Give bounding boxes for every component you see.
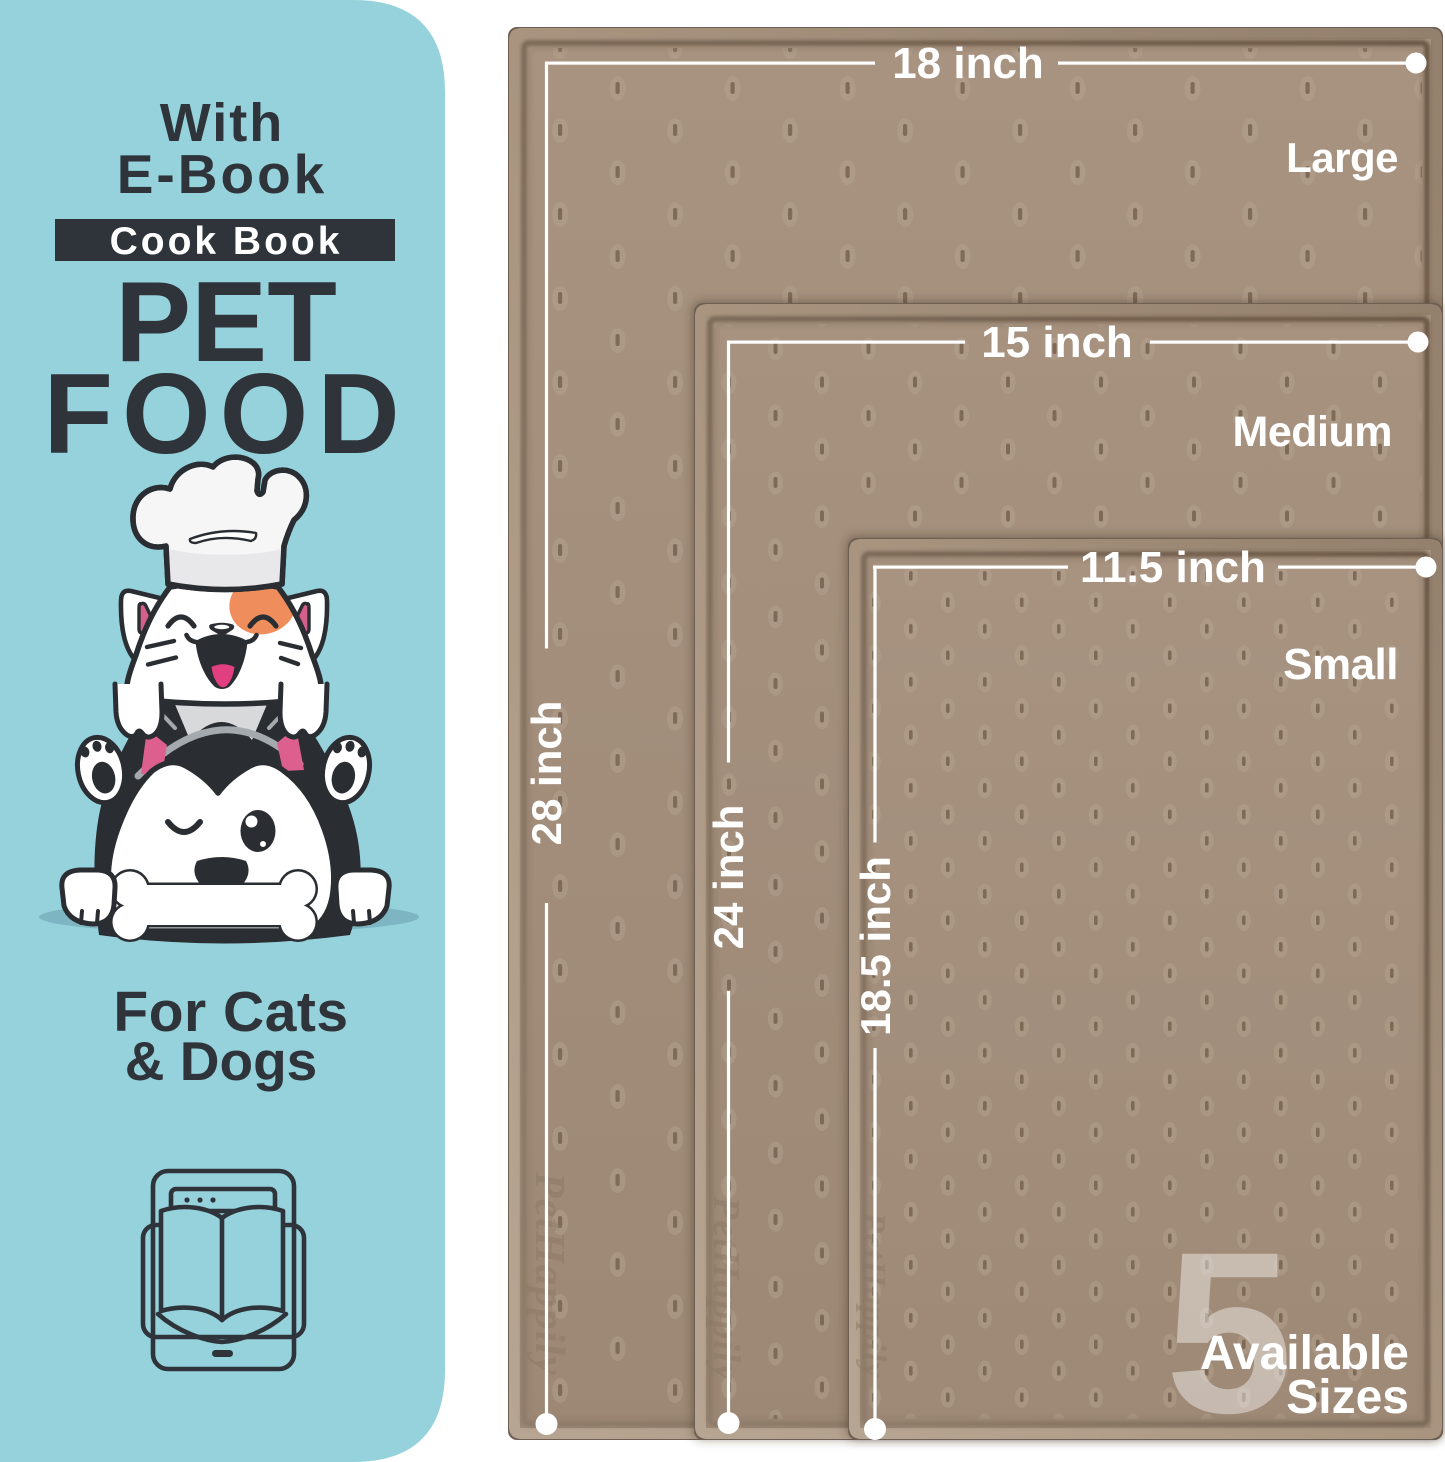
- svg-text:& Dogs: & Dogs: [125, 1030, 318, 1092]
- svg-text:Large: Large: [1286, 134, 1398, 181]
- svg-text:Small: Small: [1283, 640, 1398, 689]
- svg-text:Cook Book: Cook Book: [110, 220, 343, 263]
- svg-text:28 inch: 28 inch: [523, 701, 570, 846]
- svg-text:15 inch: 15 inch: [981, 318, 1133, 367]
- svg-text:PetHappily: PetHappily: [705, 1195, 747, 1381]
- svg-text:24 inch: 24 inch: [705, 805, 752, 950]
- svg-text:Sizes: Sizes: [1286, 1371, 1409, 1424]
- svg-text:Medium: Medium: [1233, 408, 1392, 456]
- svg-text:E-Book: E-Book: [117, 143, 328, 205]
- svg-text:11.5 inch: 11.5 inch: [1080, 543, 1266, 592]
- svg-text:18.5 inch: 18.5 inch: [852, 856, 899, 1036]
- svg-text:PetHappily: PetHappily: [526, 1171, 572, 1376]
- svg-text:18 inch: 18 inch: [892, 39, 1044, 88]
